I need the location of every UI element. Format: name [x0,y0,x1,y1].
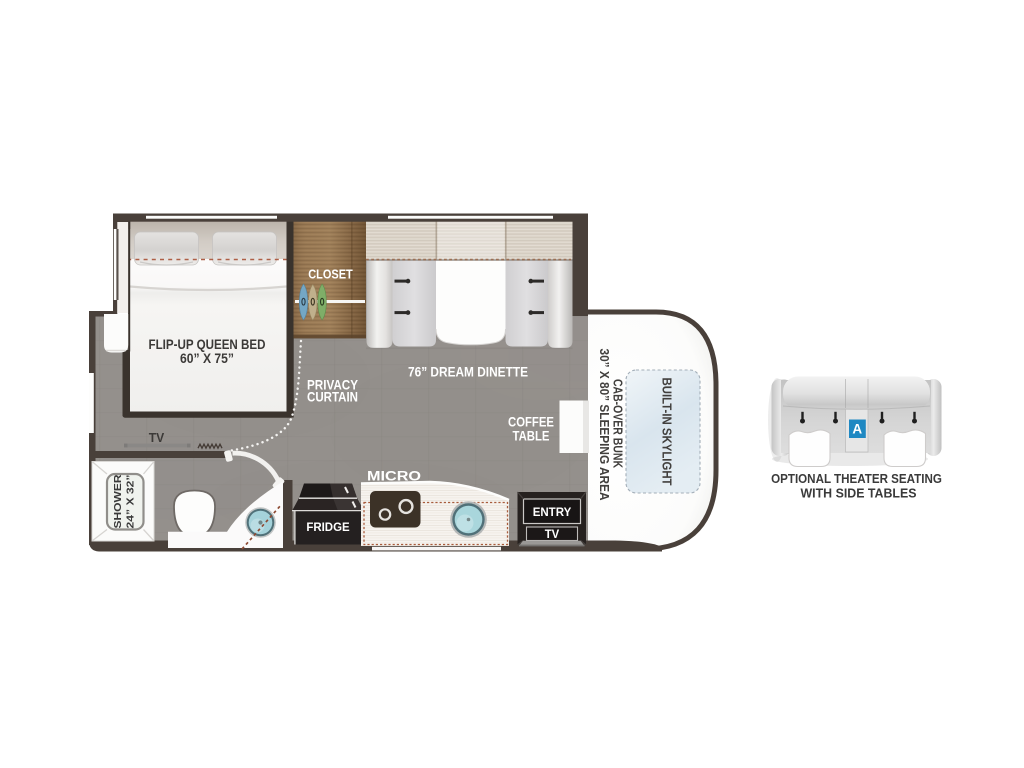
svg-text:COFFEE: COFFEE [508,414,554,429]
svg-text:FRIDGE: FRIDGE [306,520,349,534]
svg-text:TV: TV [149,430,165,445]
svg-text:CURTAIN: CURTAIN [307,389,358,405]
svg-text:TV: TV [545,527,560,541]
svg-text:A: A [852,422,862,437]
svg-text:30” X 80” SLEEPING AREA: 30” X 80” SLEEPING AREA [597,349,611,501]
svg-text:CLOSET: CLOSET [308,267,353,282]
svg-text:ENTRY: ENTRY [533,505,572,519]
svg-text:OPTIONAL THEATER SEATING: OPTIONAL THEATER SEATING [771,471,942,486]
svg-text:60” X 75”: 60” X 75” [180,350,234,366]
svg-text:MICRO: MICRO [367,468,421,483]
svg-text:WITH SIDE TABLES: WITH SIDE TABLES [801,486,917,501]
svg-text:SHOWER: SHOWER [112,474,124,528]
svg-text:TABLE: TABLE [513,428,550,443]
svg-text:76” DREAM DINETTE: 76” DREAM DINETTE [408,364,528,380]
svg-text:CAB-OVER BUNK: CAB-OVER BUNK [611,379,625,468]
svg-text:BUILT-IN SKYLIGHT: BUILT-IN SKYLIGHT [660,378,674,486]
svg-text:24” X 32”: 24” X 32” [125,475,137,529]
